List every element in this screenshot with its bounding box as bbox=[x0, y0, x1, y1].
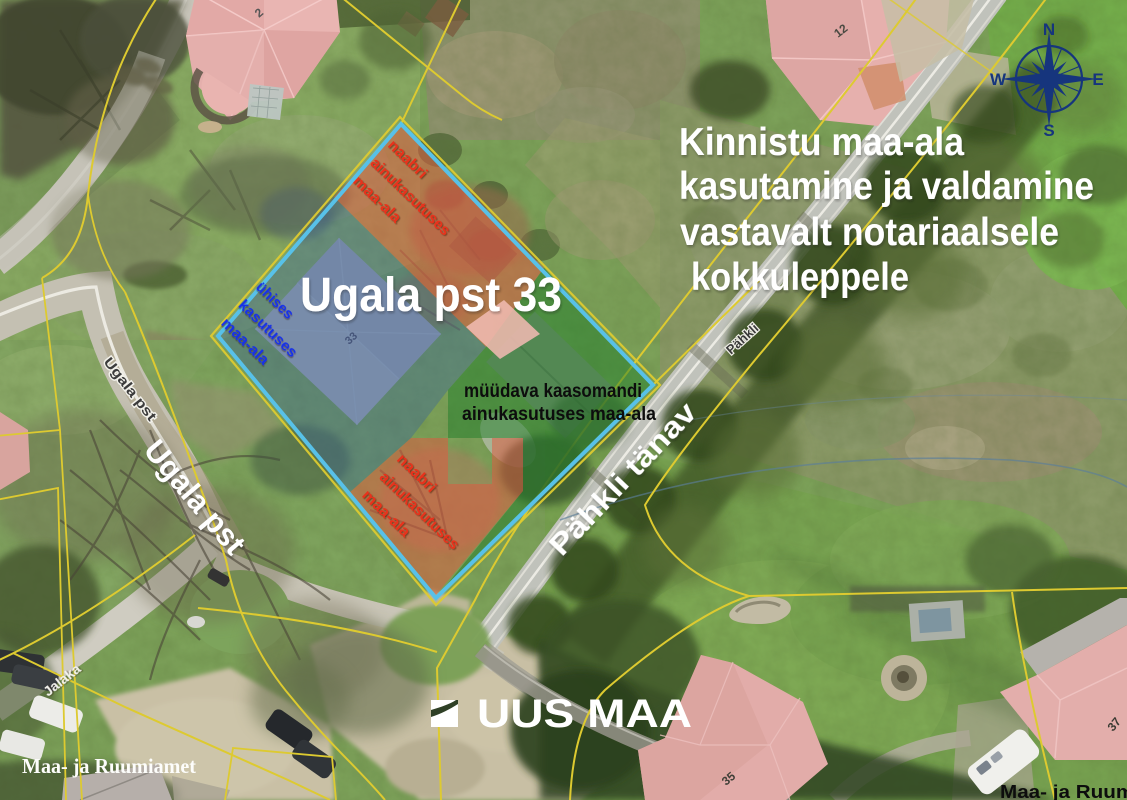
svg-text:ainukasutuses maa-ala: ainukasutuses maa-ala bbox=[462, 404, 656, 425]
svg-text:kokkuleppele: kokkuleppele bbox=[691, 256, 909, 299]
svg-text:Maa- ja Ruumiamet: Maa- ja Ruumiamet bbox=[22, 754, 196, 778]
svg-text:S: S bbox=[1043, 121, 1054, 140]
svg-text:vastavalt notariaalsele: vastavalt notariaalsele bbox=[680, 211, 1059, 254]
svg-text:UUS MAA: UUS MAA bbox=[477, 692, 692, 736]
svg-text:Kinnistu maa-ala: Kinnistu maa-ala bbox=[679, 121, 964, 164]
svg-text:kasutamine ja valdamine: kasutamine ja valdamine bbox=[679, 165, 1094, 208]
svg-text:Maa- ja Ruumi: Maa- ja Ruumi bbox=[1000, 782, 1127, 800]
svg-text:Ugala pst 33: Ugala pst 33 bbox=[300, 269, 562, 322]
svg-text:N: N bbox=[1043, 20, 1055, 39]
svg-text:E: E bbox=[1092, 70, 1103, 89]
svg-text:W: W bbox=[990, 70, 1007, 89]
svg-text:müüdava kaasomandi: müüdava kaasomandi bbox=[464, 381, 642, 402]
